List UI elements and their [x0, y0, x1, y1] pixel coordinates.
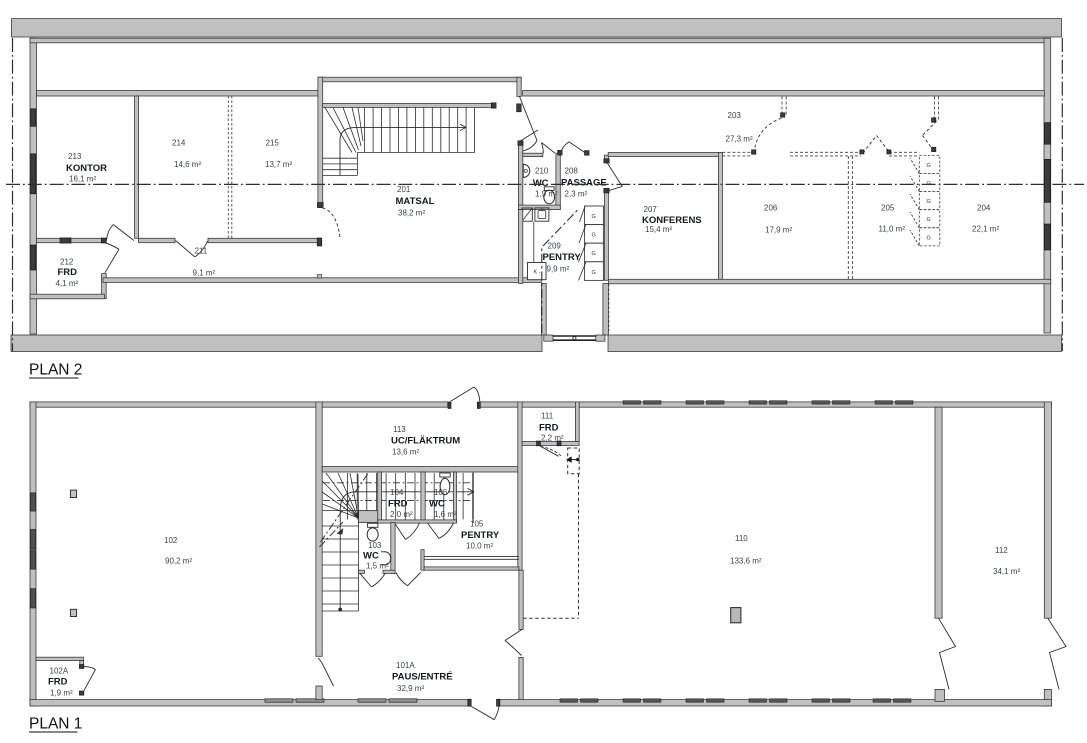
svg-text:16,1 m²: 16,1 m²: [69, 175, 96, 184]
svg-text:15,4 m²: 15,4 m²: [645, 225, 672, 234]
svg-text:208: 208: [565, 167, 579, 176]
svg-text:215: 215: [266, 139, 280, 148]
svg-text:G: G: [927, 199, 931, 205]
svg-text:206: 206: [764, 204, 778, 213]
svg-text:MATSAL: MATSAL: [396, 196, 435, 207]
svg-text:WC: WC: [533, 178, 549, 189]
svg-text:205: 205: [881, 204, 895, 213]
svg-text:1,6 m²: 1,6 m²: [434, 510, 457, 519]
svg-text:102A: 102A: [50, 667, 69, 676]
svg-text:2,3 m²: 2,3 m²: [565, 190, 588, 199]
svg-text:22,1 m²: 22,1 m²: [972, 225, 999, 234]
svg-text:13,7 m²: 13,7 m²: [265, 160, 292, 169]
svg-text:FRD: FRD: [58, 267, 78, 278]
svg-text:112: 112: [995, 546, 1008, 555]
svg-text:PENTRY: PENTRY: [543, 252, 582, 263]
svg-text:11,0 m²: 11,0 m²: [879, 225, 906, 234]
svg-text:17,9 m²: 17,9 m²: [765, 226, 792, 235]
svg-text:K -: K -: [534, 270, 541, 276]
svg-text:213: 213: [68, 152, 82, 161]
svg-text:G: G: [592, 270, 596, 276]
svg-text:9,1 m²: 9,1 m²: [193, 269, 216, 278]
svg-text:13,6 m²: 13,6 m²: [392, 448, 419, 457]
svg-text:27,3 m²: 27,3 m²: [726, 135, 753, 144]
svg-text:G: G: [592, 233, 596, 239]
svg-text:101A: 101A: [396, 661, 415, 670]
svg-text:209: 209: [548, 242, 562, 251]
svg-text:UC/FLÄKTRUM: UC/FLÄKTRUM: [391, 436, 460, 447]
svg-text:10,0 m²: 10,0 m²: [466, 542, 493, 551]
svg-text:214: 214: [172, 139, 186, 148]
svg-text:FRD: FRD: [388, 499, 408, 510]
svg-text:9,9 m²: 9,9 m²: [547, 265, 570, 274]
svg-text:1,9 m²: 1,9 m²: [535, 190, 558, 199]
svg-text:G: G: [927, 217, 931, 223]
svg-text:32,9 m²: 32,9 m²: [397, 684, 424, 693]
svg-text:14,6 m²: 14,6 m²: [174, 160, 201, 169]
svg-text:211: 211: [195, 247, 208, 256]
svg-text:G: G: [927, 163, 931, 169]
svg-text:4,1 m²: 4,1 m²: [56, 279, 79, 288]
svg-text:207: 207: [644, 205, 658, 214]
svg-text:34,1 m²: 34,1 m²: [993, 567, 1020, 576]
svg-text:2,0 m²: 2,0 m²: [390, 510, 413, 519]
svg-text:PLAN 1: PLAN 1: [29, 716, 82, 733]
svg-text:105: 105: [470, 520, 484, 529]
svg-text:113: 113: [393, 425, 406, 434]
svg-text:212: 212: [60, 258, 74, 267]
svg-text:210: 210: [535, 167, 549, 176]
svg-text:FRD: FRD: [539, 423, 559, 434]
svg-text:2,2 m²: 2,2 m²: [541, 434, 564, 443]
svg-text:WC: WC: [363, 551, 379, 562]
svg-text:PENTRY: PENTRY: [461, 530, 500, 541]
svg-text:204: 204: [977, 204, 991, 213]
svg-text:133,6 m²: 133,6 m²: [730, 557, 762, 566]
svg-text:38,2 m²: 38,2 m²: [398, 209, 425, 218]
svg-text:203: 203: [728, 111, 742, 120]
svg-text:104: 104: [390, 488, 404, 497]
svg-text:1,9 m²: 1,9 m²: [50, 689, 73, 698]
svg-text:90,2 m²: 90,2 m²: [165, 557, 192, 566]
svg-text:PLAN 2: PLAN 2: [29, 362, 82, 379]
svg-text:201: 201: [397, 185, 411, 194]
svg-text:102: 102: [164, 536, 178, 545]
svg-text:111: 111: [541, 412, 554, 421]
svg-text:PAUS/ENTRÉ: PAUS/ENTRÉ: [392, 672, 453, 683]
svg-text:110: 110: [735, 534, 748, 543]
svg-text:1,5 m²: 1,5 m²: [366, 562, 389, 571]
svg-text:WC: WC: [429, 499, 445, 510]
svg-text:G: G: [592, 214, 596, 220]
svg-text:KONTOR: KONTOR: [66, 163, 107, 174]
svg-text:G: G: [592, 251, 596, 257]
svg-text:FRD: FRD: [48, 677, 68, 688]
svg-text:G: G: [927, 235, 931, 241]
svg-text:PASSAGE: PASSAGE: [561, 178, 607, 189]
svg-text:103: 103: [368, 541, 382, 550]
svg-text:106: 106: [434, 488, 448, 497]
